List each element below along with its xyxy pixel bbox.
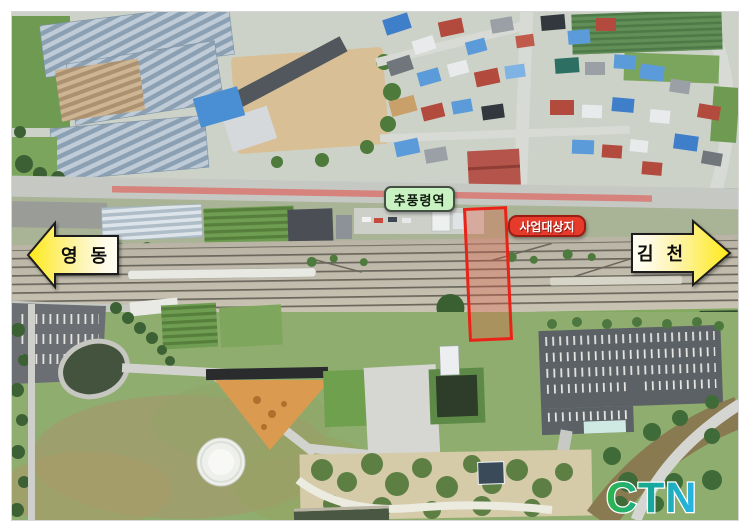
square-garden: [432, 371, 482, 421]
ctn-logo-text: CTN: [606, 474, 697, 520]
station-building: [432, 209, 450, 231]
aerial-scene: 영 동 김 천: [12, 12, 738, 520]
paved-yard: [12, 201, 107, 229]
crop-field-top-right: [571, 12, 722, 55]
project-site-label: 사업대상지: [508, 215, 586, 237]
pergola: [206, 367, 328, 380]
station-name-label: 추풍령역: [384, 186, 455, 212]
station-name-text: 추풍령역: [394, 190, 446, 209]
direction-arrow-left-label: 영 동: [61, 246, 111, 266]
garden-building: [478, 462, 505, 485]
direction-arrow-right-label: 김 천: [637, 244, 687, 264]
plaza: [364, 364, 441, 460]
project-site-text: 사업대상지: [519, 218, 574, 235]
aerial-photo: 영 동 김 천 추풍령역 사업대상지 CTN: [12, 12, 738, 520]
small-tower: [440, 346, 460, 376]
site-boundary-rect: [463, 206, 513, 342]
ctn-logo: CTN: [604, 468, 734, 520]
